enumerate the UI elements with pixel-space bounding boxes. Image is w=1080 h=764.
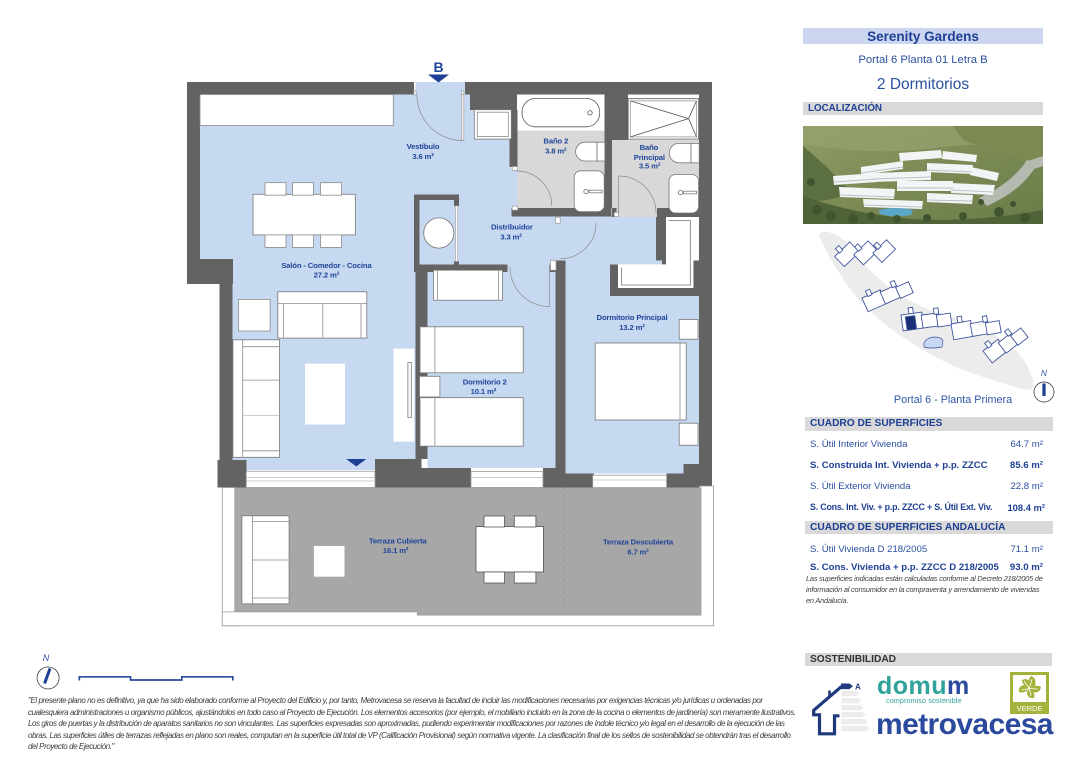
svg-text:Salón - Comedor - Cocina: Salón - Comedor - Cocina xyxy=(281,261,372,270)
svg-text:Baño: Baño xyxy=(640,143,659,152)
svg-text:Distribuidor: Distribuidor xyxy=(491,223,533,232)
svg-text:27.2 m²: 27.2 m² xyxy=(314,271,340,280)
svg-text:N: N xyxy=(43,653,50,663)
svg-text:Terraza Cubierta: Terraza Cubierta xyxy=(369,537,428,546)
svg-text:Terraza Descubierta: Terraza Descubierta xyxy=(603,538,674,547)
svg-text:N: N xyxy=(1041,368,1048,378)
svg-text:6.7 m²: 6.7 m² xyxy=(627,548,649,557)
svg-text:Vestíbulo: Vestíbulo xyxy=(407,142,440,151)
svg-text:3.8 m²: 3.8 m² xyxy=(545,147,567,156)
svg-text:3.5 m²: 3.5 m² xyxy=(639,162,661,171)
svg-text:A: A xyxy=(855,683,861,692)
svg-text:16.1 m²: 16.1 m² xyxy=(383,546,409,555)
svg-text:Baño 2: Baño 2 xyxy=(543,137,568,146)
svg-text:B: B xyxy=(434,59,444,75)
svg-text:3.3 m²: 3.3 m² xyxy=(500,233,522,242)
svg-text:Dormitorio Principal: Dormitorio Principal xyxy=(597,313,668,322)
svg-text:3.6 m²: 3.6 m² xyxy=(412,152,434,161)
svg-text:Dormitorio 2: Dormitorio 2 xyxy=(463,378,507,387)
svg-text:VERDE: VERDE xyxy=(1017,704,1043,713)
svg-text:13.2 m²: 13.2 m² xyxy=(619,323,645,332)
svg-text:10.1 m²: 10.1 m² xyxy=(471,387,497,396)
